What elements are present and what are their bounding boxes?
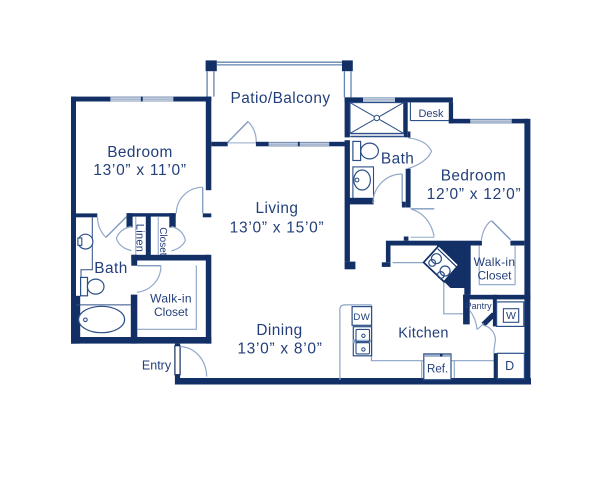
svg-text:Walk-in: Walk-in [474, 255, 516, 269]
svg-text:DW: DW [353, 312, 370, 323]
svg-text:Closet: Closet [157, 227, 168, 256]
svg-text:Living: Living [256, 200, 299, 217]
svg-text:Kitchen: Kitchen [398, 326, 448, 342]
svg-text:12’0” x 12’0”: 12’0” x 12’0” [427, 186, 522, 203]
svg-text:Desk: Desk [418, 108, 444, 120]
svg-text:D: D [505, 359, 514, 373]
svg-text:Bath: Bath [94, 260, 127, 277]
svg-text:Closet: Closet [477, 269, 512, 283]
svg-text:13’0” x 11’0”: 13’0” x 11’0” [93, 162, 187, 179]
svg-text:Entry: Entry [142, 359, 172, 373]
svg-text:Patio/Balcony: Patio/Balcony [231, 90, 331, 107]
svg-text:Dining: Dining [256, 322, 302, 339]
svg-text:Ref.: Ref. [427, 363, 448, 375]
svg-text:Bedroom: Bedroom [107, 144, 173, 161]
svg-text:Linen: Linen [134, 224, 146, 252]
svg-text:Bedroom: Bedroom [441, 168, 507, 185]
svg-text:W: W [506, 310, 516, 322]
svg-text:Bath: Bath [381, 151, 414, 168]
svg-text:Pantry: Pantry [466, 301, 493, 311]
svg-text:Closet: Closet [154, 305, 189, 319]
svg-text:13’0” x 15’0”: 13’0” x 15’0” [230, 220, 325, 237]
svg-text:Walk-in: Walk-in [150, 292, 192, 306]
svg-text:13’0” x 8’0”: 13’0” x 8’0” [237, 341, 322, 358]
